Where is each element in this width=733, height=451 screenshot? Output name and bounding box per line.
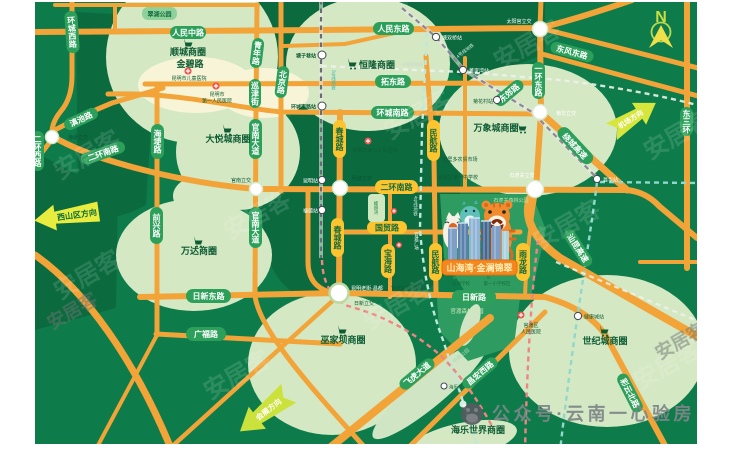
svg-text:金碧路: 金碧路 bbox=[175, 58, 204, 69]
svg-text:环城南路站: 环城南路站 bbox=[291, 104, 316, 111]
svg-text:官渡区: 官渡区 bbox=[523, 322, 538, 329]
svg-text:官渡广场: 官渡广场 bbox=[414, 231, 420, 252]
svg-text:螺蛳湾: 螺蛳湾 bbox=[373, 200, 379, 216]
svg-text:海乐世界商圈: 海乐世界商圈 bbox=[451, 424, 505, 435]
svg-text:春城路: 春城路 bbox=[334, 126, 344, 152]
svg-text:人民中路: 人民中路 bbox=[172, 28, 205, 38]
svg-text:昆明市: 昆明市 bbox=[209, 91, 224, 98]
svg-text:石虎关立交: 石虎关立交 bbox=[509, 172, 534, 179]
svg-text:日新东路: 日新东路 bbox=[193, 291, 226, 301]
svg-text:春城路: 春城路 bbox=[332, 225, 342, 251]
svg-text:第一小学校区: 第一小学校区 bbox=[484, 280, 511, 287]
svg-text:民航路: 民航路 bbox=[430, 250, 440, 275]
svg-text:官南立交: 官南立交 bbox=[231, 177, 251, 184]
svg-text:人民医院: 人民医院 bbox=[521, 329, 541, 336]
svg-text:2号线地铁: 2号线地铁 bbox=[331, 70, 337, 92]
svg-text:福德站: 福德站 bbox=[303, 208, 318, 215]
svg-text:昆明市第三人民医院: 昆明市第三人民医院 bbox=[352, 147, 397, 154]
svg-text:董家湾站: 董家湾站 bbox=[469, 68, 489, 75]
svg-text:拓东路: 拓东路 bbox=[381, 77, 406, 87]
svg-text:官南大道: 官南大道 bbox=[251, 122, 260, 156]
svg-text:广福路: 广福路 bbox=[194, 329, 219, 339]
svg-text:第一人民医院: 第一人民医院 bbox=[202, 98, 232, 105]
svg-text:一环东路: 一环东路 bbox=[533, 65, 543, 98]
svg-text:昙华站: 昙华站 bbox=[603, 177, 618, 184]
svg-text:4号线地铁: 4号线地铁 bbox=[413, 196, 419, 218]
svg-text:前兴路: 前兴路 bbox=[151, 213, 161, 239]
svg-text:巫家坝商圈: 巫家坝商圈 bbox=[320, 334, 365, 345]
svg-text:海埂立交: 海埂立交 bbox=[68, 134, 88, 141]
svg-text:菊花村站: 菊花村站 bbox=[473, 98, 493, 105]
svg-text:6号线地铁: 6号线地铁 bbox=[403, 61, 424, 68]
svg-text:万象城商圈: 万象城商圈 bbox=[472, 122, 518, 133]
svg-text:塘子巷站: 塘子巷站 bbox=[296, 53, 316, 60]
svg-text:健康城站: 健康城站 bbox=[584, 314, 604, 321]
svg-text:海乐站: 海乐站 bbox=[449, 384, 463, 391]
svg-text:大悦城商圈: 大悦城商圈 bbox=[205, 133, 250, 144]
svg-text:巡津街: 巡津街 bbox=[251, 81, 260, 107]
svg-text:日新路: 日新路 bbox=[462, 292, 487, 302]
svg-text:菊华立交: 菊华立交 bbox=[556, 110, 576, 117]
svg-text:金澜学校: 金澜学校 bbox=[452, 280, 470, 287]
svg-text:世纪城商圈: 世纪城商圈 bbox=[582, 335, 627, 346]
svg-text:雨龙路: 雨龙路 bbox=[518, 250, 528, 275]
svg-text:昆明老街·昌都: 昆明老街·昌都 bbox=[351, 285, 383, 292]
svg-text:恒隆商圈: 恒隆商圈 bbox=[359, 59, 395, 70]
svg-text:人民东路: 人民东路 bbox=[378, 24, 411, 34]
svg-text:宝海路: 宝海路 bbox=[383, 248, 393, 274]
svg-text:万达商圈: 万达商圈 bbox=[180, 245, 217, 256]
svg-text:官渡区第一中学校: 官渡区第一中学校 bbox=[438, 174, 478, 181]
svg-text:国贸路: 国贸路 bbox=[375, 223, 400, 233]
svg-text:民航路: 民航路 bbox=[428, 129, 438, 154]
svg-text:顺城商圈: 顺城商圈 bbox=[170, 46, 206, 57]
svg-text:公众号·云南一心验房: 公众号·云南一心验房 bbox=[492, 403, 695, 424]
svg-text:太阳宫立交: 太阳宫立交 bbox=[506, 18, 531, 25]
svg-text:昆明站: 昆明站 bbox=[303, 178, 318, 185]
svg-text:明波立交: 明波立交 bbox=[352, 175, 372, 182]
svg-text:塘双桥站: 塘双桥站 bbox=[442, 35, 462, 42]
svg-text:山海湾·金澜锦翠: 山海湾·金澜锦翠 bbox=[447, 262, 513, 273]
svg-text:翠湖公园: 翠湖公园 bbox=[147, 11, 171, 19]
svg-text:官渡森林公园: 官渡森林公园 bbox=[450, 307, 484, 315]
svg-text:昆明市儿童医院: 昆明市儿童医院 bbox=[171, 75, 206, 82]
svg-text:海埂路: 海埂路 bbox=[152, 129, 162, 155]
svg-text:二环南路: 二环南路 bbox=[381, 182, 414, 192]
svg-text:五里多农贸市场: 五里多农贸市场 bbox=[442, 156, 477, 163]
